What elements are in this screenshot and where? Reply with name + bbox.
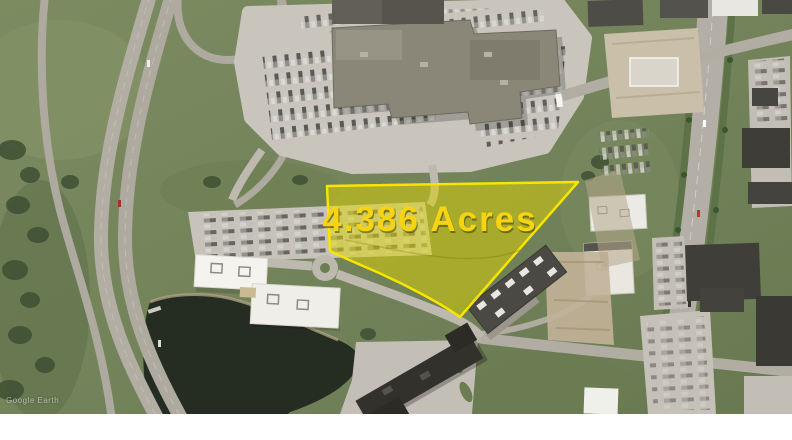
parked-cars <box>598 128 652 176</box>
annex-roof <box>240 287 257 298</box>
north-outlot-building <box>332 0 444 24</box>
parked-cars <box>656 240 686 306</box>
pad-building <box>630 58 678 86</box>
satellite-photo: 4.386 Acres 4.386 Acres <box>0 0 792 414</box>
parked-cars <box>646 316 710 410</box>
white-roof-building <box>584 387 619 414</box>
acreage-label: 4.386 Acres <box>322 200 537 239</box>
east-commercial-buildings <box>742 56 792 208</box>
white-roof-building <box>712 0 758 16</box>
listing-aerial-image: 4.386 Acres 4.386 Acres Google Earth <box>0 0 792 440</box>
google-earth-watermark: Google Earth <box>6 396 59 405</box>
